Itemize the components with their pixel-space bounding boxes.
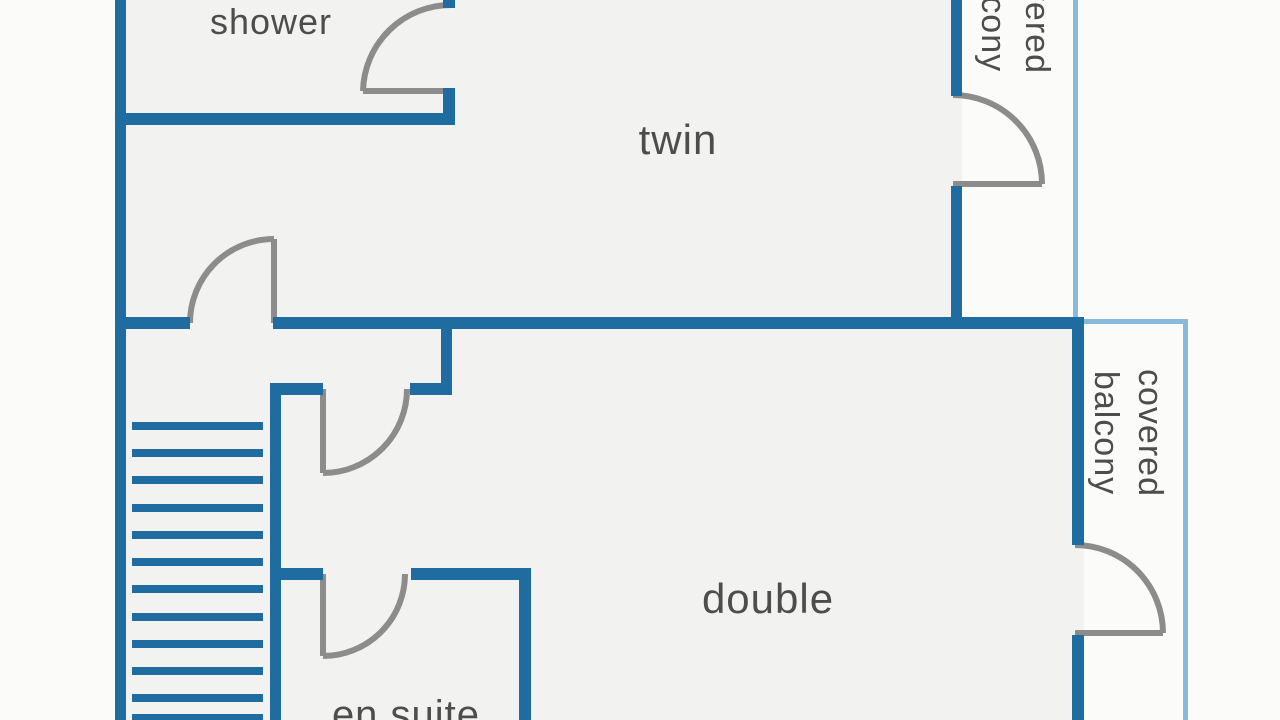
label-twin: twin bbox=[639, 116, 718, 163]
wall-shower-bottom bbox=[115, 113, 455, 125]
wall-exterior-left bbox=[115, 0, 126, 720]
stair-tread bbox=[132, 558, 263, 566]
label-covered-balcony-top-line1: covered bbox=[1018, 0, 1056, 74]
stair-tread bbox=[132, 667, 263, 675]
label-shower: shower bbox=[210, 1, 332, 42]
label-en-suite: en suite bbox=[332, 693, 480, 720]
stair-tread bbox=[132, 476, 263, 484]
wall-main-left-segment bbox=[115, 317, 190, 329]
balcony-right-outer-edge bbox=[1183, 319, 1188, 720]
wall-twin-right-lower bbox=[951, 186, 962, 329]
balcony-top-outer-edge bbox=[1073, 0, 1078, 319]
floor-plan-canvas: shower twin double en suite covered balc… bbox=[0, 0, 1280, 720]
floor-plan-page: shower twin double en suite covered balc… bbox=[0, 0, 1280, 720]
floor-upper-rooms bbox=[115, 0, 962, 329]
stair-tread bbox=[132, 694, 263, 702]
wall-double-right-upper bbox=[1072, 317, 1084, 545]
floor-lower-rooms bbox=[115, 317, 1084, 720]
label-covered-balcony-right-line1: covered bbox=[1131, 369, 1169, 497]
wall-double-right-lower bbox=[1072, 635, 1084, 720]
stair-tread bbox=[132, 640, 263, 648]
stair-tread bbox=[132, 531, 263, 539]
label-covered-balcony-right-line2: balcony bbox=[1087, 371, 1125, 495]
wall-shower-jamb-bottom bbox=[443, 88, 455, 125]
stair-tread bbox=[132, 504, 263, 512]
floors bbox=[115, 0, 1084, 720]
stair-tread bbox=[132, 613, 263, 621]
wall-shower-jamb-top bbox=[443, 0, 455, 8]
stair-tread bbox=[132, 449, 263, 457]
wall-hall-stub-arm bbox=[410, 383, 452, 395]
stair-tread bbox=[132, 422, 263, 430]
stair-tread bbox=[132, 714, 263, 720]
wall-main-right-segment bbox=[273, 317, 1084, 329]
wall-ensuite-top-right bbox=[411, 568, 531, 580]
balcony-right-top-edge bbox=[1084, 319, 1188, 324]
wall-ensuite-top-left bbox=[270, 568, 323, 580]
stair-tread bbox=[132, 585, 263, 593]
label-double: double bbox=[702, 575, 834, 622]
wall-stairs-right bbox=[270, 383, 281, 720]
label-covered-balcony-top-line2: balcony bbox=[974, 0, 1012, 72]
wall-ensuite-right bbox=[519, 568, 531, 720]
wall-twin-right-upper bbox=[951, 0, 962, 96]
